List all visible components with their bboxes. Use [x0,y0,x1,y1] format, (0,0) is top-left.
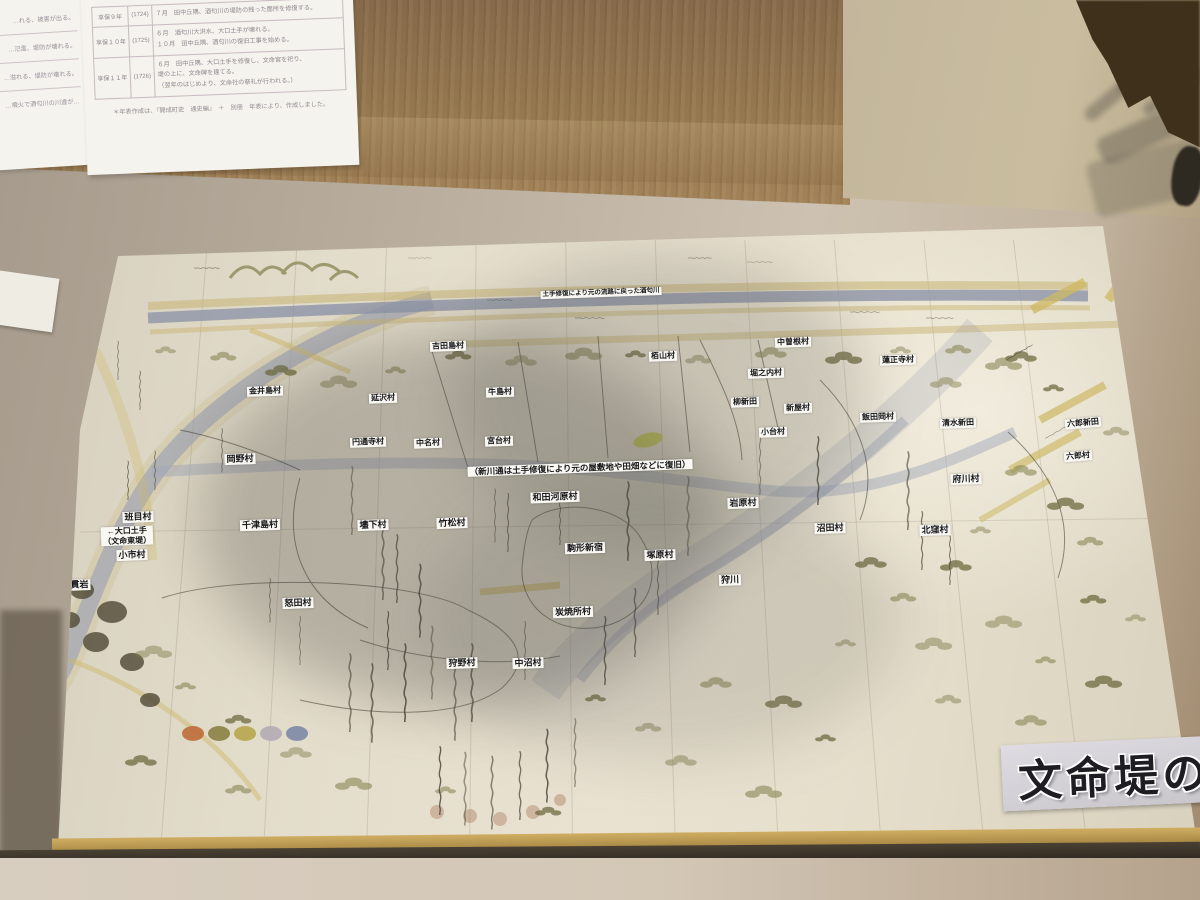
exhibit-sign: 文命堤の [1001,735,1200,812]
chronology-caption: ＊年表作成は、『開成町史 通史編』 ＋ 別冊 年表により、作成しました。 [95,98,347,117]
chronology-cell: 享保１１年 [94,57,132,99]
legend-color-dot [286,726,308,741]
village-label: 小台村 [759,427,787,438]
paper-sheet-corner [0,270,59,333]
village-label: 岩原村 [727,497,758,509]
village-label: 班目村 [122,511,153,523]
village-label: 中曽根村 [775,337,811,348]
village-label: 岡野村 [224,453,255,465]
village-label: 新屋村 [784,403,812,414]
village-label: 宮台村 [485,436,513,447]
chronology-cell: (1724) [128,6,153,26]
village-label: 狩野村 [446,657,477,669]
chronology-cell: (1726) [130,56,156,97]
chronology-panel: 享保９年(1724)７月 田中丘隅、酒匂川の堤防の残った箇所を修復する。享保１０… [81,0,360,175]
chronology-cell: 享保９年 [92,6,129,26]
left-chronology-panel: …れる、被害が出る。…氾濫、堤防が壊れる。…溢れる、堤防が壊れる。…噴火で酒匂川… [0,0,91,171]
village-label: 中沼村 [512,657,543,669]
village-label: 怒田村 [282,597,313,609]
village-label: 駒形新宿 [565,542,605,554]
chronology-cell: 享保１０年 [93,26,130,57]
village-label: 北窪村 [919,524,950,536]
village-label: 和田河原村 [530,491,579,504]
village-label: 円通寺村 [350,437,386,448]
legend-color-dot [234,726,256,741]
village-label: 堀之内村 [748,368,784,379]
village-label: 小市村 [116,549,147,561]
legend-color-dot [260,726,282,741]
village-label: 飯田岡村 [860,412,896,423]
village-label: 中名村 [414,438,442,449]
village-label: 壗下村 [357,519,388,531]
village-label: ←大口土手 （文命東堤） [101,526,154,547]
chronology-table: 享保９年(1724)７月 田中丘隅、酒匂川の堤防の残った箇所を修復する。享保１０… [91,0,346,100]
village-label: 狩川 [719,574,741,586]
chronology-cell: ６月 田中丘隅、大口土手を修復し、文命宮を祀り、 堤の上に、文命碑を建てる。 （… [154,49,345,97]
village-label: 竹松村 [436,517,467,529]
village-label: 栢山村 [649,351,677,362]
village-label: 吉田島村 [430,341,466,352]
village-label: 蓮正寺村 [880,355,916,366]
exhibit-sign-text: 文命堤の [1001,737,1200,810]
village-label: 府川村 [950,473,981,485]
village-label: 塚原村 [644,549,675,561]
legend-color-dot [182,726,204,741]
left-panel-fragment: …噴火で酒匂川の川違が… [0,86,82,120]
village-label: 牛島村 [486,387,514,398]
village-label: 延沢村 [369,393,397,404]
chronology-cell: (1725) [129,25,154,56]
table-front-edge [0,858,1200,900]
museum-photo: …れる、被害が出る。…氾濫、堤防が壊れる。…溢れる、堤防が壊れる。…噴火で酒匂川… [0,0,1200,900]
legend-color-dot [208,726,230,741]
village-label: 沼田村 [814,522,845,534]
village-label: 柳新田 [731,397,759,408]
village-label: 清水新田 [940,418,976,429]
village-label: 千津島村 [240,519,280,531]
village-label: 金井島村 [247,386,283,397]
village-label: 炭焼所村 [553,606,593,618]
